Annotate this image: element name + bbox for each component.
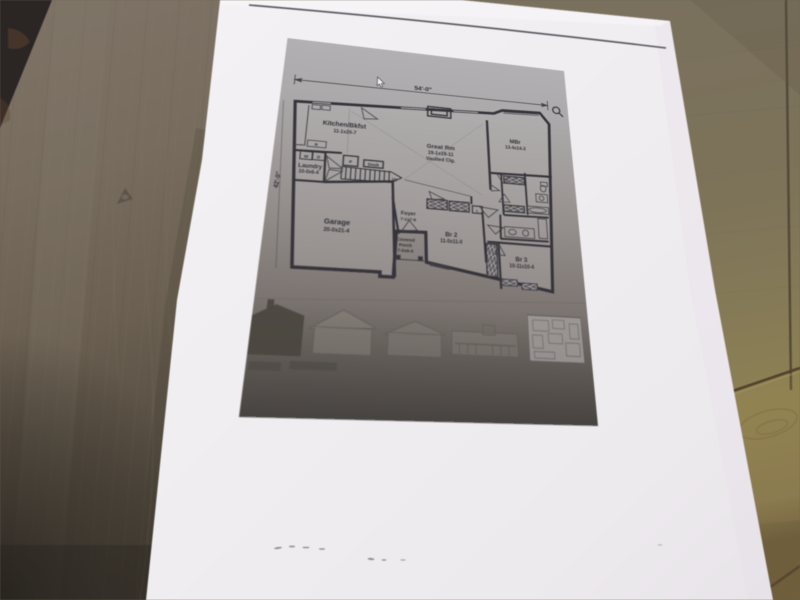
svg-text:P: P <box>349 159 353 164</box>
svg-text:D: D <box>317 154 321 159</box>
svg-text:W: W <box>304 154 309 159</box>
svg-text:7-0x6-0: 7-0x6-0 <box>397 247 414 254</box>
svg-text:R: R <box>314 142 318 147</box>
svg-text:Desk: Desk <box>368 162 380 168</box>
svg-text:Up: Up <box>392 177 398 182</box>
